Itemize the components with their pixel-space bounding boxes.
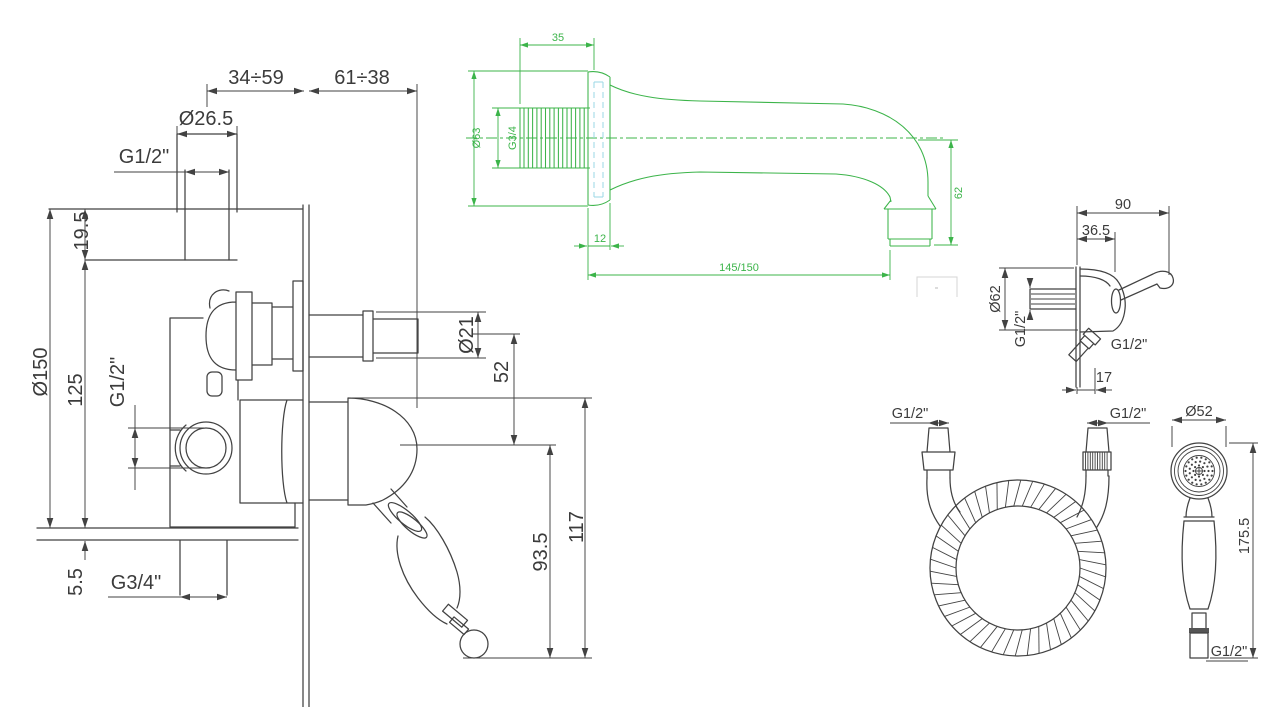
dim-label-spout-reach: 145/150	[719, 262, 759, 274]
dim-label-plate-thickness: 5.5	[65, 568, 87, 596]
dim-label-depth-range-b: 61÷38	[334, 67, 389, 89]
handshower-knurl-band	[1189, 628, 1209, 633]
dim-label-spout-thread-length: 35	[552, 32, 564, 44]
dim-label-plate-diameter: Ø150	[30, 348, 52, 397]
handshower-view: Ø52 175.5 G1/2"	[1171, 404, 1258, 661]
bracket-view: 90 36.5 Ø62 G1/2" G1/2" 17	[988, 197, 1173, 394]
dim-label-bracket-outlet-offset: 17	[1096, 370, 1112, 386]
dim-label-spout-drop-height: 62	[953, 187, 965, 199]
dim-label-hose-left-connection: G1/2"	[892, 406, 929, 422]
dim-label-bracket-inlet-thread: G1/2"	[1013, 311, 1029, 348]
hose-knurl-hatch	[1086, 453, 1108, 470]
mixer-valve-view: 34÷59 61÷38 Ø26.5 G1/2" 19.5 Ø150 125 G1…	[30, 67, 592, 707]
dim-label-bottom-outlet-thread: G3/4"	[111, 572, 161, 594]
dim-label-handshower-connection-thread: G1/2"	[1211, 644, 1248, 660]
faint-watermark-dot	[935, 287, 938, 289]
dim-label-bracket-overall-depth: 90	[1115, 197, 1131, 213]
dim-label-bracket-body-depth: 36.5	[1082, 223, 1110, 239]
dim-label-hose-right-connection: G1/2"	[1110, 406, 1147, 422]
dim-label-depth-range-a: 34÷59	[228, 67, 283, 89]
technical-drawing-canvas: 34÷59 61÷38 Ø26.5 G1/2" 19.5 Ø150 125 G1…	[0, 0, 1280, 707]
dim-label-bracket-outlet-thread: G1/2"	[1111, 337, 1148, 353]
dim-label-body-height: 125	[65, 373, 87, 406]
dim-label-spindle-diameter: Ø21	[456, 316, 478, 354]
dim-label-bracket-flange-diameter: Ø62	[988, 285, 1004, 312]
dim-label-plate-offset: 19.5	[71, 212, 93, 251]
dim-label-spout-flange-depth: 12	[594, 233, 606, 245]
dim-label-axis-distance: 52	[491, 361, 513, 383]
dim-label-handle-length: 93.5	[530, 533, 552, 572]
spout-thread-hatch	[524, 109, 584, 168]
hose-view: G1/2" G1/2"	[890, 406, 1150, 656]
dim-label-side-port-thread: G1/2"	[107, 357, 129, 407]
dim-label-handshower-head-diameter: Ø52	[1185, 404, 1212, 420]
dim-label-spout-flange-diameter: Ø63	[471, 128, 483, 149]
spout-view: 35 Ø63 G3/4 12 145/150 62	[466, 32, 965, 297]
dim-label-riser-od: Ø26.5	[179, 108, 233, 130]
technical-drawing-page: 34÷59 61÷38 Ø26.5 G1/2" 19.5 Ø150 125 G1…	[0, 0, 1280, 707]
dim-label-handle-overall: 117	[566, 511, 588, 543]
dim-label-riser-thread: G1/2"	[119, 146, 169, 168]
dim-label-spout-thread: G3/4	[507, 126, 519, 150]
dim-label-handshower-overall-length: 175.5	[1237, 518, 1253, 554]
